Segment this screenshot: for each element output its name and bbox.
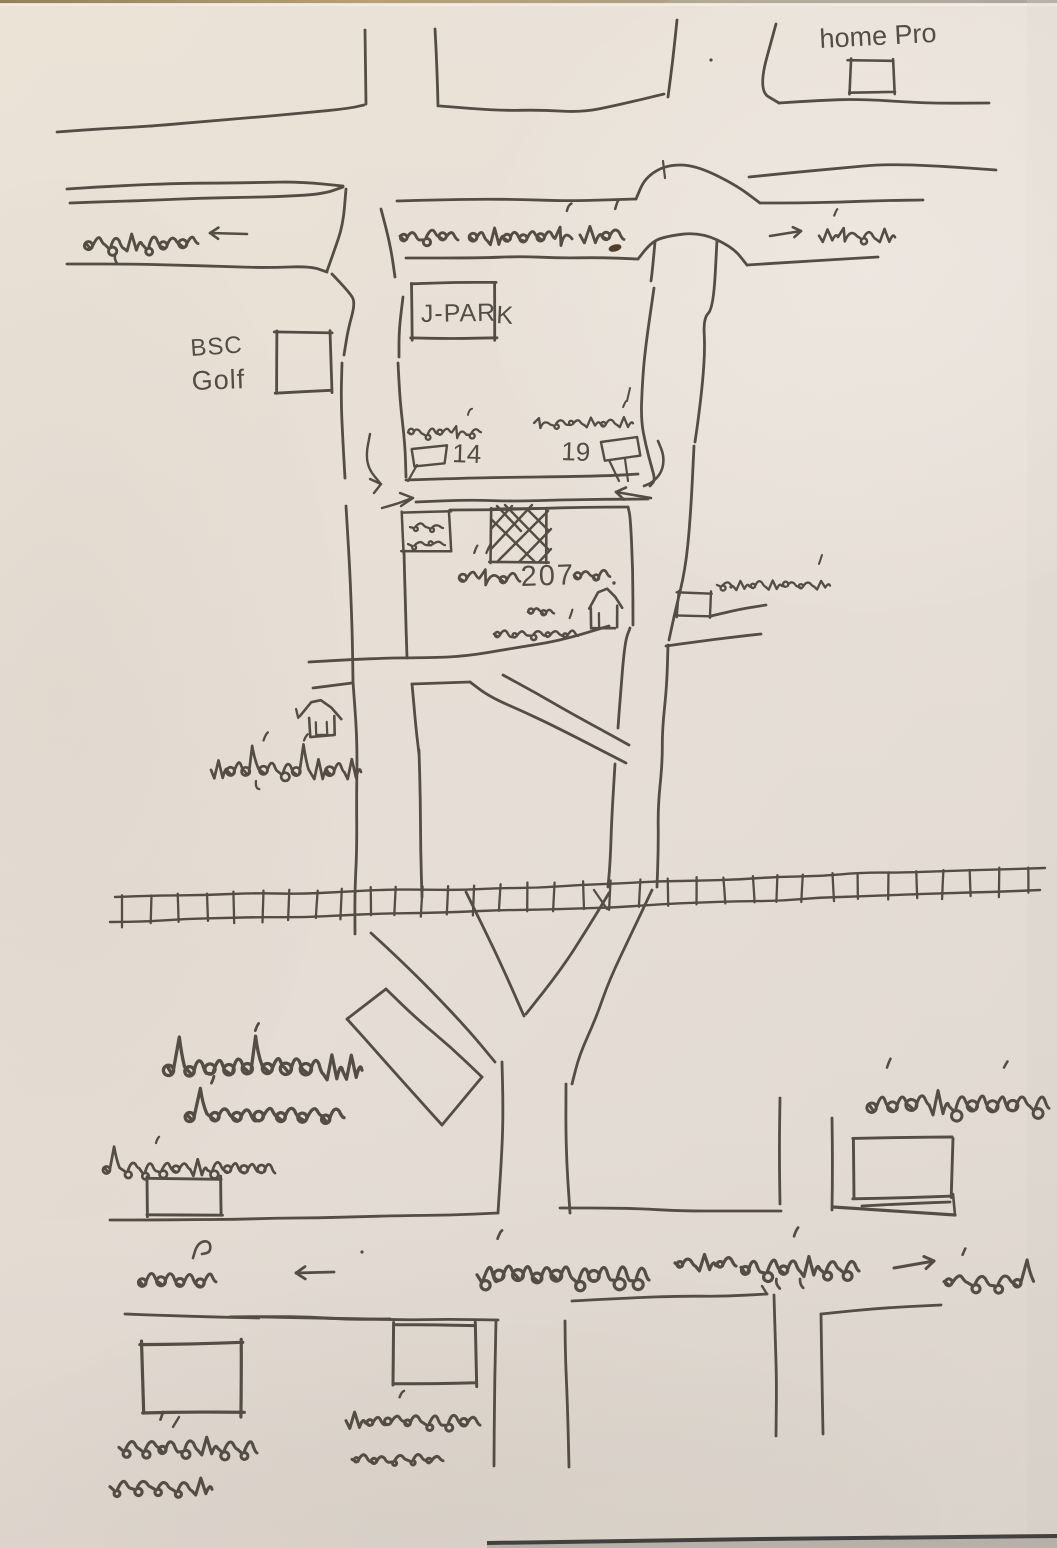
svg-text:K: K [496, 301, 514, 330]
svg-text:J-PAR: J-PAR [421, 299, 497, 328]
svg-text:19: 19 [561, 436, 591, 467]
svg-text:BSC: BSC [190, 331, 244, 362]
svg-text:14: 14 [452, 438, 482, 469]
svg-text:home Pro: home Pro [819, 18, 937, 54]
svg-text:207: 207 [520, 559, 575, 593]
svg-text:Golf: Golf [191, 364, 246, 396]
